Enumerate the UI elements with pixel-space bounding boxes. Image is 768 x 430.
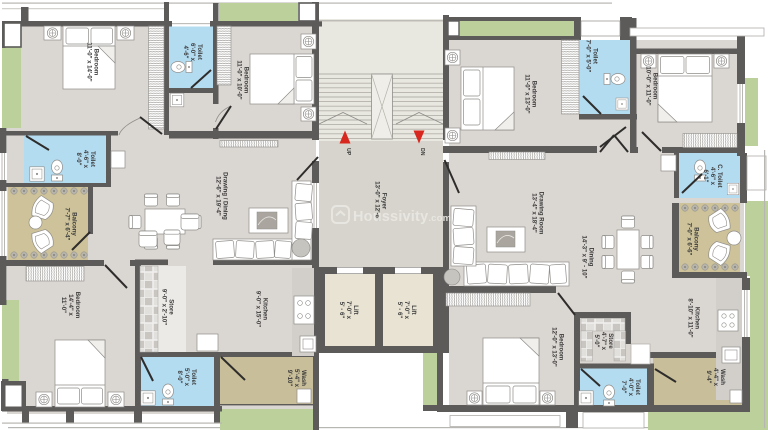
svg-text:Drawing / Dining12'-6" x 19'-4: Drawing / Dining12'-6" x 19'-4" <box>215 172 228 220</box>
svg-text:Balcony7'-0" x 6'-6": Balcony7'-0" x 6'-6" <box>686 223 699 256</box>
svg-text:Wash5'-4" x9'-10": Wash5'-4" x9'-10" <box>286 369 306 388</box>
svg-text:UP: UP <box>345 148 351 156</box>
svg-text:DN: DN <box>419 148 425 156</box>
svg-text:Drawing Room13'-4" x 18'-4": Drawing Room13'-4" x 18'-4" <box>531 192 544 235</box>
svg-text:Balcony7'-7" x 6'-4": Balcony7'-7" x 6'-4" <box>64 208 77 241</box>
